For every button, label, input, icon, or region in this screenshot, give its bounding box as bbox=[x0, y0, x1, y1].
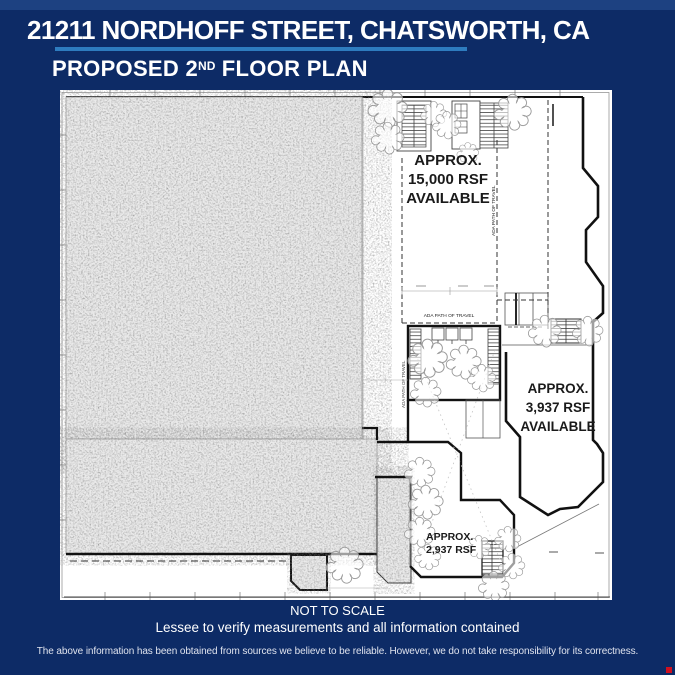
dimension-line bbox=[402, 286, 497, 295]
title-divider-rule bbox=[55, 47, 467, 51]
corner-red-mark bbox=[666, 667, 672, 673]
suite-label-line: AVAILABLE bbox=[406, 189, 490, 208]
suite-label-line: 2,937 RSF bbox=[426, 544, 486, 557]
stipple-tower-south bbox=[375, 477, 412, 583]
east-suite-outline-walls bbox=[506, 97, 603, 515]
suite-label-line: 3,937 RSF bbox=[516, 398, 600, 417]
floor-plan-drawing: ADA PATH OF TRAVEL ADA PATH OF TRAVEL AD… bbox=[60, 90, 612, 600]
vertical-note-mark bbox=[552, 104, 554, 126]
suite-label-line: APPROX. bbox=[516, 379, 600, 398]
plan-title-rest: FLOOR PLAN bbox=[215, 56, 367, 81]
suite-label-line: AVAILABLE bbox=[516, 417, 600, 436]
suite-label-15000-rsf: APPROX. 15,000 RSF AVAILABLE bbox=[406, 151, 490, 208]
leased-area-stipple-lower bbox=[66, 428, 377, 561]
top-accent-strip bbox=[0, 0, 675, 10]
plan-title-main: PROPOSED 2 bbox=[52, 56, 198, 81]
suite-label-line: APPROX. bbox=[406, 151, 490, 170]
ada-path-label-horizontal: ADA PATH OF TRAVEL bbox=[424, 313, 475, 319]
disclaimer-text: The above information has been obtained … bbox=[0, 646, 675, 657]
property-address: 21211 NORDHOFF STREET, CHATSWORTH, CA bbox=[27, 15, 647, 46]
plan-title: PROPOSED 2ND FLOOR PLAN bbox=[52, 56, 368, 82]
suite-label-2937-rsf: APPROX. 2,937 RSF bbox=[426, 531, 486, 557]
ada-path-label-vertical-2: ADA PATH OF TRAVEL bbox=[401, 360, 406, 408]
suite-label-3937-rsf: APPROX. 3,937 RSF AVAILABLE bbox=[516, 379, 600, 436]
ada-path-label-vertical-1: ADA PATH OF TRAVEL bbox=[491, 185, 497, 236]
stipple-bump-south bbox=[291, 555, 327, 590]
leased-area-stipple-upper bbox=[66, 97, 362, 439]
flyer-page: 21211 NORDHOFF STREET, CHATSWORTH, CA PR… bbox=[0, 0, 675, 675]
suite-label-line: 15,000 RSF bbox=[406, 170, 490, 189]
suite-label-line: APPROX. bbox=[426, 531, 486, 544]
lessee-verify-note: Lessee to verify measurements and all in… bbox=[0, 620, 675, 635]
not-to-scale-note: NOT TO SCALE bbox=[0, 603, 675, 618]
plan-title-ordinal: ND bbox=[198, 59, 215, 73]
floor-plan-panel: ADA PATH OF TRAVEL ADA PATH OF TRAVEL AD… bbox=[60, 90, 612, 600]
